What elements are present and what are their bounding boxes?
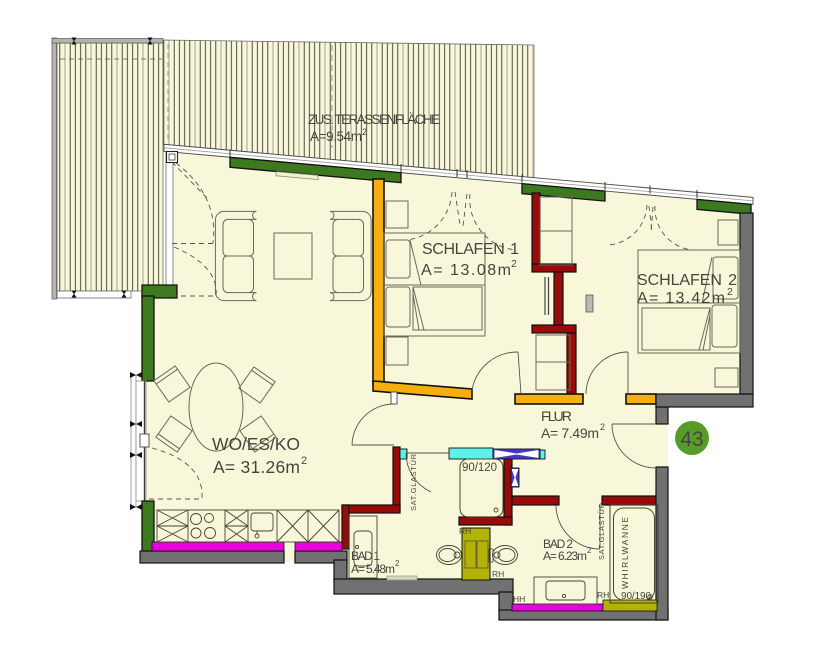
svg-text:43: 43 <box>680 428 703 451</box>
svg-text:A= 13.42m: A= 13.42m <box>637 290 725 307</box>
svg-text:ZUS. TERASSENFLÄCHE: ZUS. TERASSENFLÄCHE <box>308 112 440 127</box>
svg-text:RH: RH <box>459 526 471 536</box>
svg-text:WHIRLWANNE: WHIRLWANNE <box>620 517 630 589</box>
svg-text:A=9.54m: A=9.54m <box>310 129 362 144</box>
svg-text:A= 13.08m: A= 13.08m <box>421 262 511 279</box>
svg-text:WO/ES/KO: WO/ES/KO <box>212 434 300 454</box>
svg-text:SAT.GLASTÜR: SAT.GLASTÜR <box>409 453 418 511</box>
svg-text:2: 2 <box>587 546 592 555</box>
svg-text:2: 2 <box>600 422 605 432</box>
svg-text:2: 2 <box>301 455 307 467</box>
svg-text:SCHLAFEN 2: SCHLAFEN 2 <box>637 272 737 289</box>
svg-text:A= 7.49m: A= 7.49m <box>541 425 599 441</box>
svg-text:2: 2 <box>395 559 400 568</box>
svg-text:BAD 1: BAD 1 <box>351 549 380 563</box>
svg-text:90/120: 90/120 <box>462 462 497 474</box>
svg-text:FLUR: FLUR <box>541 408 572 424</box>
svg-text:2: 2 <box>727 286 733 298</box>
svg-text:2: 2 <box>362 127 367 137</box>
svg-text:RH: RH <box>492 569 504 579</box>
svg-text:HH: HH <box>513 594 525 604</box>
svg-text:2: 2 <box>511 258 517 270</box>
svg-text:A= 31.26m: A= 31.26m <box>213 457 300 477</box>
svg-text:A= 5.48m: A= 5.48m <box>351 562 395 576</box>
svg-text:SCHLAFEN 1: SCHLAFEN 1 <box>422 241 519 258</box>
svg-text:90/190: 90/190 <box>621 591 651 602</box>
svg-text:A= 6.23m: A= 6.23m <box>543 549 587 563</box>
svg-text:RH: RH <box>597 590 609 600</box>
svg-text:SAT.GLASTÜR: SAT.GLASTÜR <box>597 502 606 560</box>
